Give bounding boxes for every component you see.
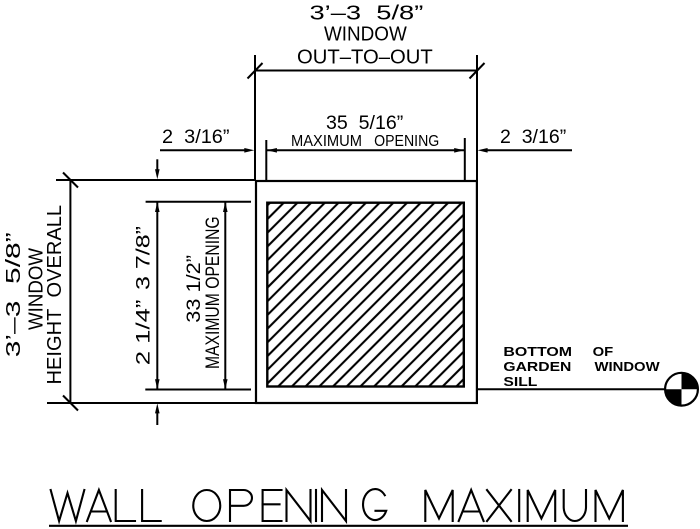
svg-text:2 3/16”: 2 3/16” — [162, 127, 230, 148]
svg-text:35 5/16”: 35 5/16” — [326, 113, 403, 134]
svg-text:OPENING: OPENING — [374, 133, 439, 150]
svg-text:SILL: SILL — [503, 374, 537, 389]
svg-text:HEIGHT OVERALL: HEIGHT OVERALL — [44, 205, 66, 385]
svg-text:OF: OF — [593, 344, 614, 359]
svg-text:MAXIMUM OPENING: MAXIMUM OPENING — [203, 216, 224, 369]
svg-text:WINDOW: WINDOW — [595, 359, 661, 374]
svg-text:3’–3 5/8”: 3’–3 5/8” — [310, 3, 424, 25]
svg-text:BOTTOM: BOTTOM — [503, 344, 572, 359]
svg-text:3’–3 5/8”: 3’–3 5/8” — [3, 232, 25, 357]
svg-text:2 3/16”: 2 3/16” — [500, 127, 566, 148]
svg-text:WINDOW: WINDOW — [324, 24, 407, 46]
svg-text:MAXIMUM: MAXIMUM — [291, 133, 362, 150]
svg-text:33 1/2”: 33 1/2” — [184, 255, 205, 323]
svg-text:2 1/4”: 2 1/4” — [134, 300, 155, 366]
svg-text:GARDEN: GARDEN — [503, 359, 571, 374]
svg-text:3 7/8”: 3 7/8” — [134, 226, 155, 290]
svg-text:OUT–TO–OUT: OUT–TO–OUT — [297, 47, 433, 69]
